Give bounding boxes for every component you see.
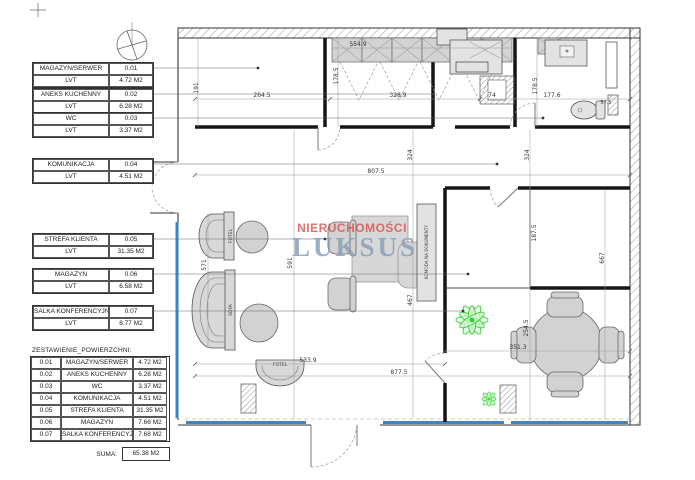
summary-cell: 0.07: [31, 429, 61, 441]
room-floor: LVT: [33, 75, 109, 87]
sofa-label: SOFA: [228, 303, 234, 316]
summary-total-row: SUMA: 65.38 M2: [30, 447, 170, 461]
summary-cell: 6.28 M2: [133, 369, 167, 381]
room-floor: LVT: [33, 318, 109, 330]
dim-label: 57.5: [600, 100, 611, 106]
summary-cell: WC: [61, 381, 133, 393]
dim-label: 591: [287, 257, 294, 269]
room-floor: LVT: [33, 246, 109, 258]
summary-cell: 0.04: [31, 393, 61, 405]
dim-label: 324: [407, 149, 414, 161]
room-name: WC: [33, 113, 109, 125]
komoda-label: KOMODA NA DOKUMENTY: [424, 224, 429, 279]
summary-cell: ANEKS KUCHENNY: [61, 369, 133, 381]
shaft-niche: [480, 76, 514, 104]
room-floor: LVT: [33, 125, 109, 137]
dim-label: 328.9: [389, 92, 406, 99]
summary-cell: 7.68 M2: [133, 429, 167, 441]
wc-sink: [545, 40, 587, 66]
dim-label: 178.5: [333, 67, 340, 84]
summary-cell: SALKA KONFERENCYJNA: [61, 429, 133, 441]
summary-cell: MAGAZYN/SERWER: [61, 357, 133, 369]
room-area: 3.37 M2: [109, 125, 153, 137]
room-number: 0.04: [109, 159, 153, 171]
summary-cell: 4.72 M2: [133, 357, 167, 369]
sofa: SOFA: [192, 270, 235, 350]
dim-label: 324: [524, 149, 531, 161]
dim-label: 467: [407, 294, 414, 306]
summary-cell: 0.06: [31, 417, 61, 429]
room-name: MAGAZYN: [33, 269, 109, 281]
room-area: 31.35 M2: [109, 246, 153, 258]
doors: [152, 62, 535, 467]
dim-label: 187.5: [531, 224, 538, 241]
area-summary: ZESTAWIENIE_POWIERZCHNI: 0.01 MAGAZYN/SE…: [30, 347, 170, 461]
room-area: 6.58 M2: [109, 281, 153, 293]
dim-label: 177.6: [543, 92, 560, 99]
room-floor: LVT: [33, 171, 109, 183]
plant-large: [456, 304, 488, 336]
dim-label: 178.5: [532, 77, 539, 94]
summary-cell: 0.05: [31, 405, 61, 417]
summary-cell: KOMUNIKACJA: [61, 393, 133, 405]
room-name: KOMUNIKACJA: [33, 159, 109, 171]
summary-cell: 7.66 M2: [133, 417, 167, 429]
room-table-magazyn-serwer: MAGAZYN/SERWER 0.01 LVT 4.72 M2: [32, 62, 154, 88]
room-number: 0.01: [109, 63, 153, 75]
dim-label: 571: [201, 259, 208, 271]
dim-label: 667: [599, 252, 606, 264]
room-area: 8.77 M2: [109, 318, 153, 330]
room-number: 0.05: [109, 234, 153, 246]
coffee-table-2: [240, 304, 278, 342]
komoda-cabinet: KOMODA NA DOKUMENTY: [417, 204, 436, 301]
summary-cell: 3.37 M2: [133, 381, 167, 393]
storage-cabinet-conference: [500, 385, 516, 413]
summary-cell: STREFA KLIENTA: [61, 405, 133, 417]
dim-label: 807.5: [367, 168, 384, 175]
sheet-corner-mark: [30, 3, 46, 17]
room-name: ANEKS KUCHENNY: [33, 89, 109, 101]
room-table-aneks-kuchenny: ANEKS KUCHENNY 0.02 LVT 6.28 M2: [32, 88, 154, 114]
room-area: 4.51 M2: [109, 171, 153, 183]
room-table-salka-konferencyjna: SALKA KONFERENCYJNA 0.07 LVT 8.77 M2: [32, 305, 154, 331]
summary-cell: 0.02: [31, 369, 61, 381]
dim-label: 74: [488, 92, 496, 99]
armchair-top-label: FOTEL: [228, 228, 234, 243]
summary-cell: 0.01: [31, 357, 61, 369]
room-table-magazyn: MAGAZYN 0.06 LVT 6.58 M2: [32, 268, 154, 294]
summary-cell: MAGAZYN: [61, 417, 133, 429]
office-chair-1: [328, 220, 356, 256]
coffee-table-1: [236, 221, 268, 253]
summary-cell: 31.35 M2: [133, 405, 167, 417]
room-name: SALKA KONFERENCYJNA: [33, 306, 109, 318]
room-floor: LVT: [33, 281, 109, 293]
armchair-bottom-label: FOTEL: [273, 362, 288, 368]
summary-cell: 4.51 M2: [133, 393, 167, 405]
room-name: MAGAZYN/SERWER: [33, 63, 109, 75]
dim-label: 254.5: [523, 319, 530, 336]
office-chair-2: [328, 276, 356, 312]
room-number: 0.07: [109, 306, 153, 318]
dim-label: 533.9: [299, 357, 316, 364]
dim-label: 191: [193, 82, 200, 94]
summary-table: 0.01 MAGAZYN/SERWER 4.72 M2 0.02 ANEKS K…: [30, 356, 170, 442]
conference-table: [530, 308, 602, 380]
room-number: 0.06: [109, 269, 153, 281]
dim-label: 877.5: [390, 369, 407, 376]
summary-title: ZESTAWIENIE_POWIERZCHNI:: [32, 347, 170, 354]
dim-label: 554.9: [349, 41, 366, 48]
dim-label: 264.5: [253, 92, 270, 99]
summary-cell: 0.03: [31, 381, 61, 393]
room-number: 0.03: [109, 113, 153, 125]
floorplan-canvas: FOTEL SOFA FOTEL KOMODA NA DOKUMENTY: [0, 0, 695, 480]
north-compass-icon: [117, 22, 147, 60]
armchair-top: FOTEL: [199, 212, 234, 260]
storage-cabinet-left: [241, 384, 256, 413]
summary-total-value: 65.38 M2: [122, 447, 170, 461]
dim-label: 351.3: [509, 344, 526, 351]
room-number: 0.02: [109, 89, 153, 101]
room-name: STREFA KLIENTA: [33, 234, 109, 246]
summary-total-label: SUMA:: [96, 451, 117, 458]
room-area: 4.72 M2: [109, 75, 153, 87]
room-table-strefa-klienta: STREFA KLIENTA 0.05 LVT 31.35 M2: [32, 233, 154, 259]
room-table-wc: WC 0.03 LVT 3.37 M2: [32, 112, 154, 138]
room-table-komunikacja: KOMUNIKACJA 0.04 LVT 4.51 M2: [32, 158, 154, 184]
plant-small: [482, 392, 497, 407]
